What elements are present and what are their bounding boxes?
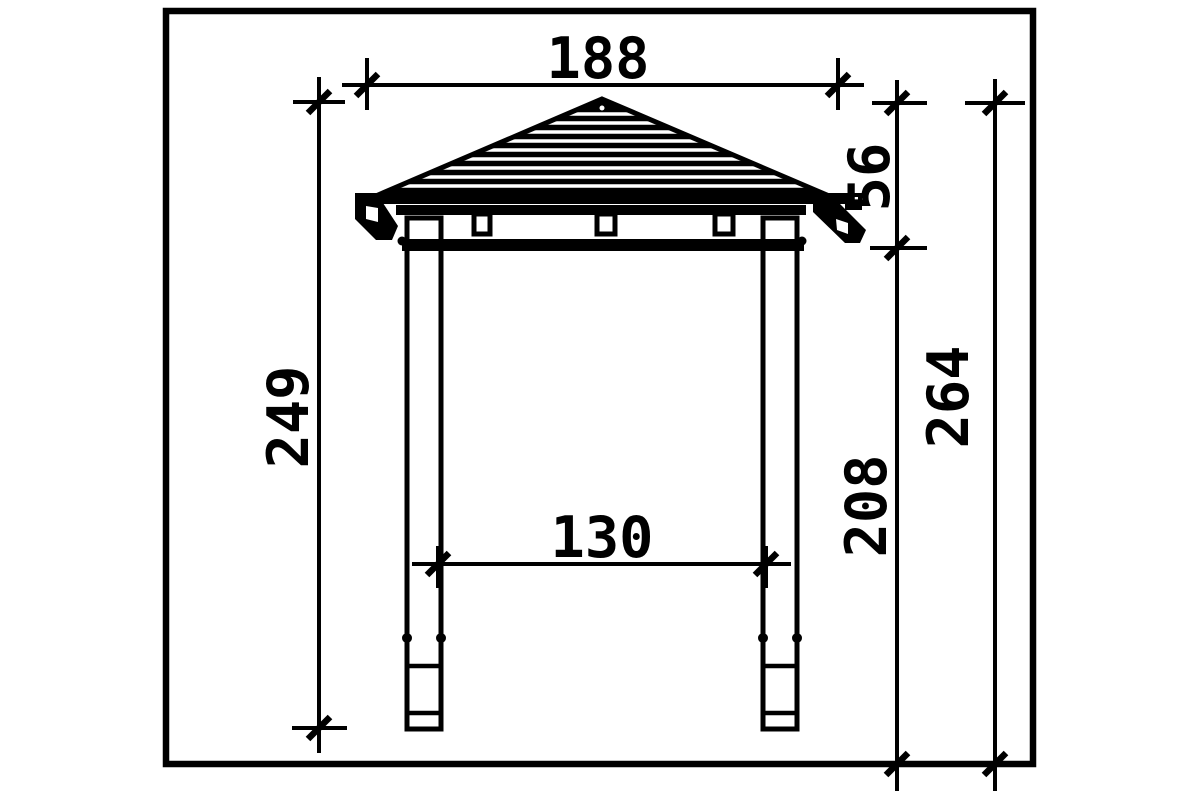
dim-label-total-height: 264 <box>916 346 982 449</box>
dim-label-roof-height: 56 <box>837 143 903 212</box>
roof-plank-stripes <box>358 94 848 206</box>
drawing-page: 188 249 56 208 264 130 <box>0 0 1200 800</box>
dim-label-roof-width: 188 <box>547 26 650 92</box>
anchor-bolt-icon <box>436 633 446 643</box>
right-post-body <box>763 218 797 729</box>
anchor-bolt-icon <box>792 633 802 643</box>
roof-apex-cap <box>600 106 605 111</box>
eave-fascia-band <box>357 193 845 204</box>
beam-bolt-icon <box>798 237 807 246</box>
dim-label-height-left: 249 <box>256 366 322 469</box>
roof <box>358 94 848 206</box>
dimension-total-height: 264 <box>916 79 1025 791</box>
rafter-end-block <box>474 214 490 234</box>
dimension-height-left: 249 <box>256 77 347 753</box>
dimension-roof-and-post-height: 56 208 <box>834 80 927 791</box>
left-post <box>402 218 446 729</box>
dimension-clear-width: 130 <box>412 505 791 588</box>
right-post <box>758 218 802 729</box>
dim-label-post-height: 208 <box>834 455 900 558</box>
anchor-bolt-icon <box>758 633 768 643</box>
rafter-end-block <box>715 214 733 234</box>
header-beam <box>402 239 804 251</box>
left-post-body <box>407 218 441 729</box>
anchor-bolt-icon <box>402 633 412 643</box>
technical-drawing: 188 249 56 208 264 130 <box>0 0 1200 800</box>
dim-label-clear-width: 130 <box>551 505 654 571</box>
beam-bolt-icon <box>398 237 407 246</box>
rafter-end-block <box>597 214 615 234</box>
